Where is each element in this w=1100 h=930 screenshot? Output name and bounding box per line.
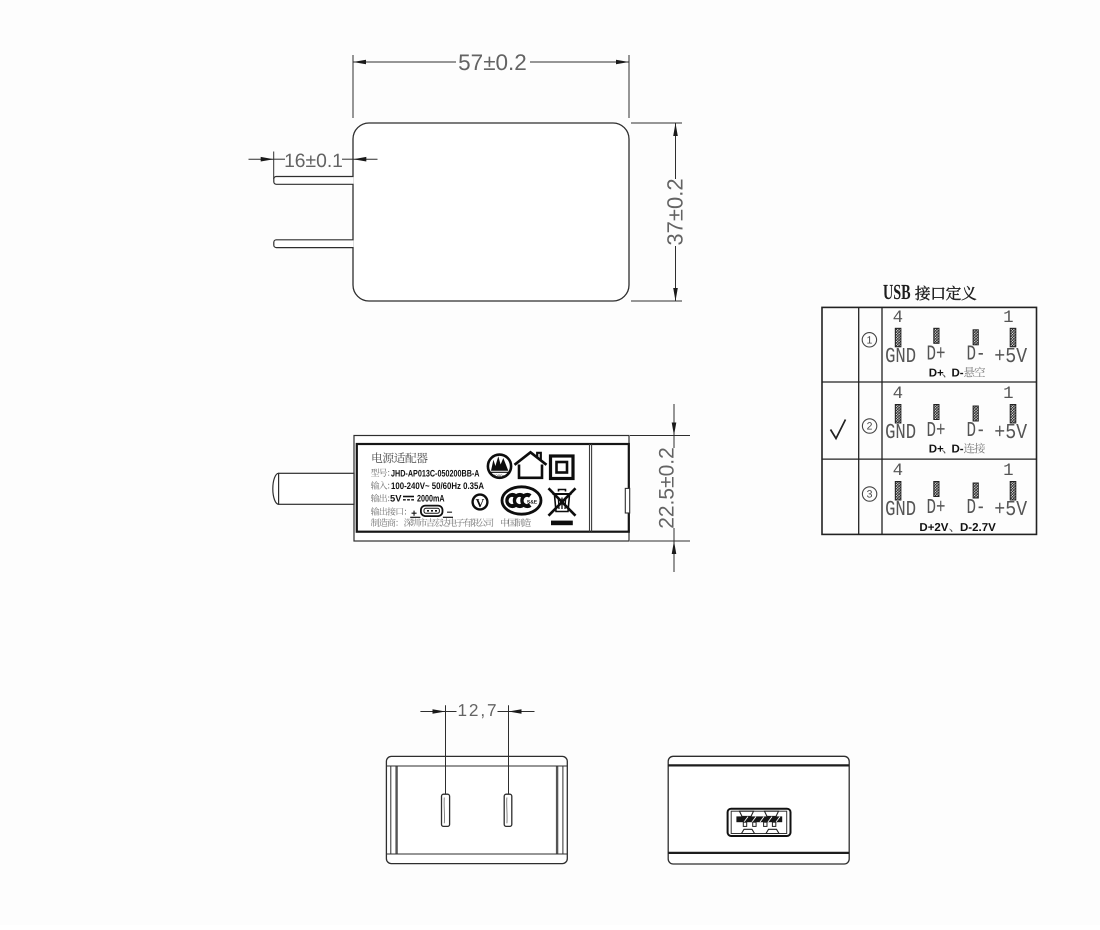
svg-text:D-: D- <box>952 368 964 380</box>
svg-text:5V: 5V <box>390 494 402 505</box>
svg-text:D+2V: D+2V <box>919 522 948 534</box>
svg-text:−: − <box>447 508 453 519</box>
svg-text:57±0.2: 57±0.2 <box>458 50 527 75</box>
svg-text:2000mA: 2000mA <box>417 494 445 505</box>
svg-text:D-: D- <box>952 444 964 456</box>
svg-text:12,7: 12,7 <box>458 700 497 720</box>
svg-text:+5V: +5V <box>994 498 1027 522</box>
svg-text:D-2.7V: D-2.7V <box>960 522 996 534</box>
svg-text:+5V: +5V <box>994 345 1027 369</box>
svg-text:4: 4 <box>893 309 903 328</box>
svg-text:V: V <box>476 496 485 510</box>
svg-text:GND: GND <box>885 421 916 445</box>
svg-text:1: 1 <box>866 334 872 346</box>
svg-text:1: 1 <box>1003 462 1013 481</box>
svg-text:2000m: 2000m <box>493 474 507 479</box>
svg-text:D+: D+ <box>927 343 946 367</box>
svg-text:37±0.2: 37±0.2 <box>663 178 688 245</box>
svg-text:100-240V~ 50/60Hz 0.35A: 100-240V~ 50/60Hz 0.35A <box>391 481 484 492</box>
svg-text:D+: D+ <box>929 368 944 380</box>
svg-text:22.5±0.2: 22.5±0.2 <box>656 447 679 529</box>
svg-text:D-: D- <box>967 496 986 520</box>
svg-text:16±0.1: 16±0.1 <box>284 151 343 172</box>
svg-text:D+: D+ <box>929 444 944 456</box>
svg-text:D-: D- <box>967 343 986 367</box>
svg-text:4: 4 <box>893 462 903 481</box>
svg-text:GND: GND <box>885 498 916 522</box>
svg-text:D-: D- <box>967 419 986 443</box>
svg-text:2: 2 <box>867 421 873 433</box>
svg-text:4: 4 <box>893 385 903 404</box>
svg-text:+5V: +5V <box>994 421 1027 445</box>
svg-text:1: 1 <box>1003 309 1013 328</box>
svg-text:D+: D+ <box>927 419 946 443</box>
svg-text:3: 3 <box>867 489 873 501</box>
svg-text:GND: GND <box>885 345 916 369</box>
svg-text:1: 1 <box>1003 385 1013 404</box>
svg-text:S&E: S&E <box>527 500 538 506</box>
svg-text:D+: D+ <box>927 496 946 520</box>
svg-text:USB: USB <box>883 280 911 304</box>
svg-text:JHD-AP013C-050200BB-A: JHD-AP013C-050200BB-A <box>391 468 480 479</box>
